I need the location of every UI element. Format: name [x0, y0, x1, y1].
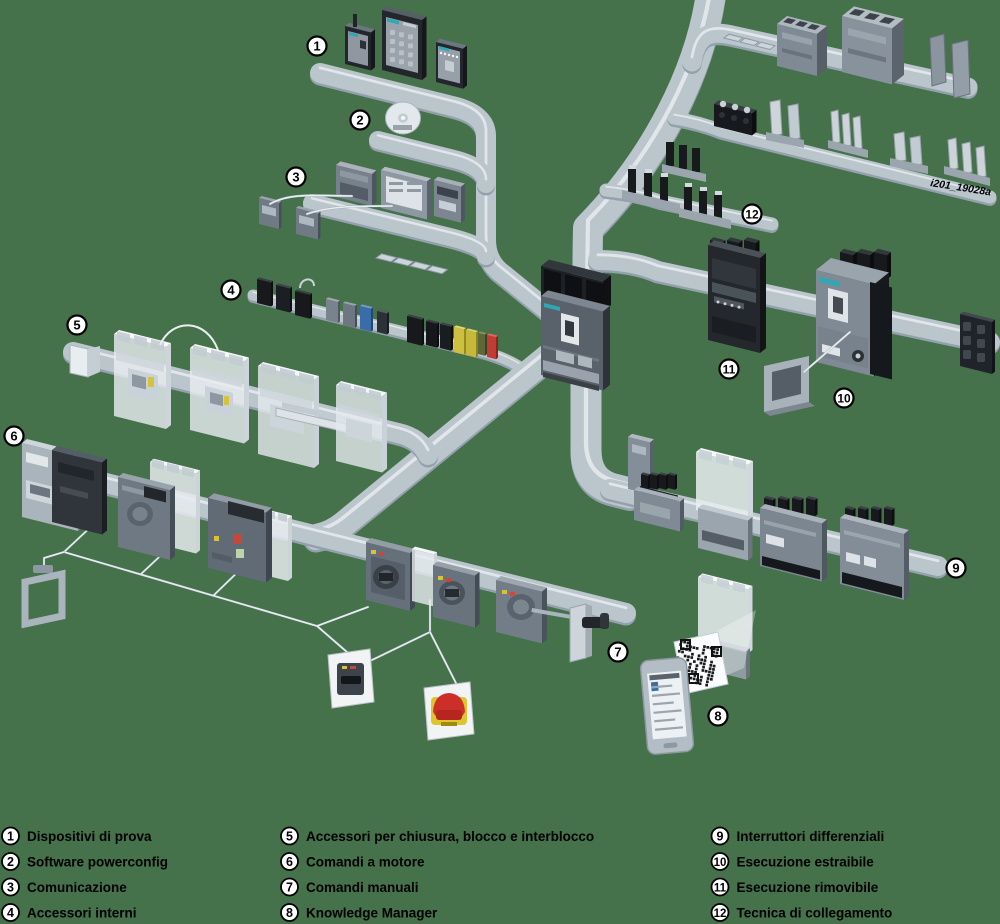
svg-text:Esecuzione rimovibile: Esecuzione rimovibile — [737, 880, 879, 895]
svg-text:3: 3 — [7, 880, 14, 894]
svg-text:12: 12 — [745, 207, 759, 221]
svg-text:5: 5 — [286, 829, 293, 843]
svg-text:11: 11 — [723, 362, 736, 376]
svg-text:5: 5 — [73, 318, 80, 333]
svg-text:9: 9 — [717, 829, 724, 843]
svg-text:6: 6 — [286, 855, 293, 869]
svg-text:Esecuzione estraibile: Esecuzione estraibile — [737, 854, 875, 869]
svg-text:7: 7 — [286, 880, 293, 894]
svg-text:Dispositivi di prova: Dispositivi di prova — [27, 829, 152, 844]
svg-text:Knowledge Manager: Knowledge Manager — [306, 905, 438, 920]
svg-text:1: 1 — [7, 829, 14, 843]
svg-text:Comandi a motore: Comandi a motore — [306, 854, 425, 869]
svg-text:2: 2 — [7, 855, 14, 869]
svg-text:3: 3 — [292, 170, 299, 185]
svg-text:10: 10 — [714, 857, 727, 869]
svg-text:Software powerconfig: Software powerconfig — [27, 854, 168, 869]
svg-text:12: 12 — [714, 908, 727, 920]
svg-text:4: 4 — [227, 283, 235, 298]
svg-text:Tecnica di collegamento: Tecnica di collegamento — [737, 905, 893, 920]
svg-text:11: 11 — [714, 882, 727, 894]
svg-text:4: 4 — [7, 906, 14, 920]
svg-text:8: 8 — [714, 709, 721, 724]
svg-text:9: 9 — [952, 561, 959, 576]
svg-text:6: 6 — [10, 429, 17, 444]
svg-text:8: 8 — [286, 906, 293, 920]
svg-text:2: 2 — [356, 113, 363, 128]
svg-text:Comandi manuali: Comandi manuali — [306, 880, 419, 895]
svg-text:10: 10 — [837, 391, 851, 405]
svg-text:Interruttori differenziali: Interruttori differenziali — [737, 829, 885, 844]
svg-text:1: 1 — [313, 39, 320, 54]
svg-text:Accessori per chiusura, blocco: Accessori per chiusura, blocco e interbl… — [306, 829, 594, 844]
svg-text:Comunicazione: Comunicazione — [27, 880, 127, 895]
svg-text:Accessori interni: Accessori interni — [27, 905, 137, 920]
svg-text:7: 7 — [614, 645, 621, 660]
